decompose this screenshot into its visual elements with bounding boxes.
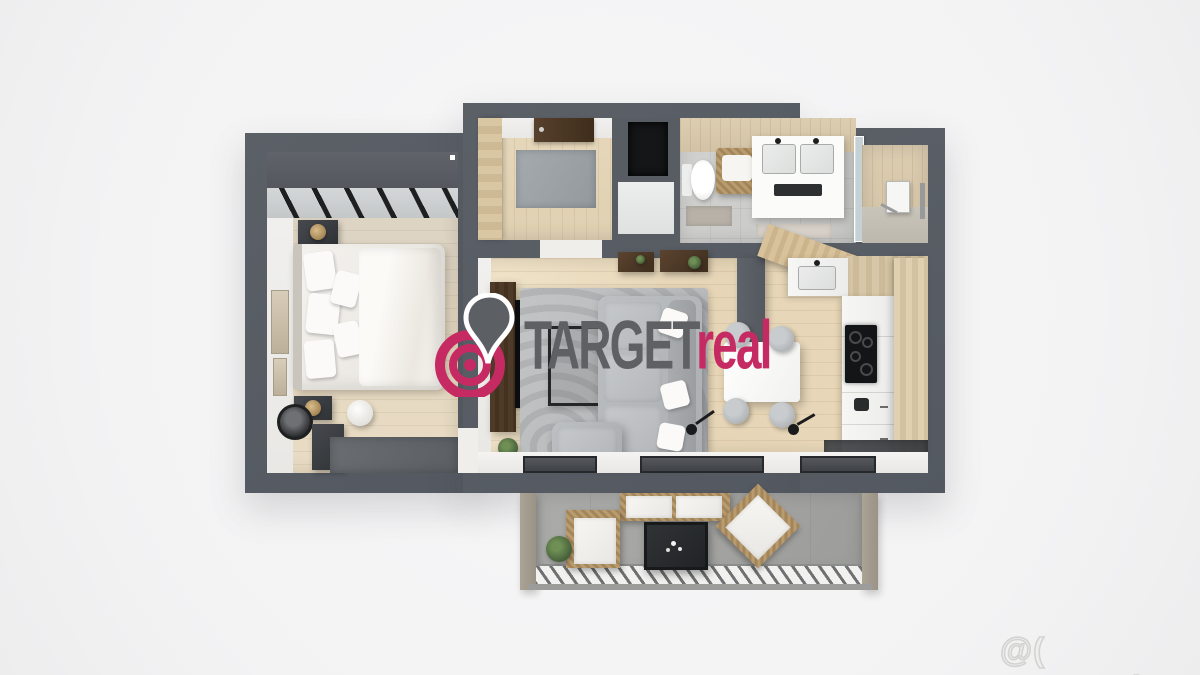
balcony-table xyxy=(644,522,708,570)
kitchen-sink xyxy=(798,266,836,290)
pouf xyxy=(347,400,373,426)
cooktop xyxy=(845,325,877,383)
logo-text-primary: TARGET xyxy=(524,306,696,383)
balcony-plant xyxy=(546,536,572,562)
floorplan-screenshot: TARGETreal @( Bazos.sk xyxy=(0,0,1200,675)
cabinet-handle xyxy=(880,406,888,408)
round-mirror xyxy=(277,404,313,440)
towel-rail xyxy=(920,183,925,219)
faucet xyxy=(775,138,781,144)
bath-mat xyxy=(686,206,732,226)
hall-doorway xyxy=(540,240,602,258)
sink-right xyxy=(800,144,834,174)
targetreal-logo: TARGETreal xyxy=(428,293,788,397)
sofa-pillow xyxy=(656,422,686,452)
sink-left xyxy=(762,144,796,174)
logo-text-accent: real xyxy=(696,306,770,383)
headboard xyxy=(293,244,302,390)
shelf-plant-small xyxy=(636,255,645,264)
shelf-plant xyxy=(688,256,701,269)
entry-door xyxy=(534,118,594,142)
utility-shaft-wall xyxy=(612,118,680,240)
pillow xyxy=(303,339,336,379)
hall-rug xyxy=(516,150,596,208)
entry-hall xyxy=(478,118,630,240)
rattan-sofa-cushion xyxy=(676,496,722,518)
bazos-watermark: @( Bazos.sk xyxy=(1000,631,1200,671)
laundry-cloth xyxy=(722,155,752,181)
wall-art-small xyxy=(273,358,287,396)
window xyxy=(523,456,597,473)
rattan-sofa-cushion xyxy=(626,496,672,518)
walk-in-shower xyxy=(862,145,928,243)
toilet-bowl xyxy=(691,160,715,200)
balcony-wall-right xyxy=(862,493,878,590)
built-in-wardrobe xyxy=(267,152,458,188)
shaft-cabinet xyxy=(618,182,674,234)
balcony-wall-left xyxy=(520,493,536,590)
door-handle xyxy=(539,127,544,132)
sink-counter xyxy=(788,258,848,296)
map-pin-target-icon xyxy=(428,293,532,397)
burner xyxy=(862,337,873,348)
dining-chair xyxy=(723,398,749,424)
kitchen-faucet xyxy=(814,260,820,266)
kitchen-tall-wood-panel xyxy=(894,258,928,458)
burner xyxy=(860,363,873,376)
balcony-door xyxy=(800,456,876,473)
burner xyxy=(850,351,861,362)
vanity-tray xyxy=(774,184,822,196)
burner xyxy=(849,331,862,344)
utility-shaft xyxy=(628,122,668,176)
floor-lamp-living xyxy=(686,424,697,435)
double-bed xyxy=(293,244,445,390)
railing-base xyxy=(528,584,872,590)
logo-text: TARGETreal xyxy=(524,311,771,380)
bedroom-doorway xyxy=(458,428,478,473)
window xyxy=(640,456,764,473)
rattan-armchair-left xyxy=(566,510,620,568)
double-vanity xyxy=(752,136,844,218)
table-flowers xyxy=(678,547,682,551)
glass-partition xyxy=(267,188,458,218)
table-flowers xyxy=(671,541,676,546)
faucet xyxy=(813,138,819,144)
cabinet-seam xyxy=(842,392,894,393)
rattan-sofa xyxy=(620,493,730,521)
toilet xyxy=(682,160,716,202)
wardrobe-handle xyxy=(450,155,455,160)
bedside-lamp-top xyxy=(310,224,326,240)
bedroom-rug xyxy=(330,437,458,473)
wall-art xyxy=(271,290,289,354)
kettle xyxy=(854,398,869,411)
armchair-cushion xyxy=(574,518,616,564)
cabinet-seam xyxy=(842,424,894,425)
hall-wardrobe xyxy=(478,118,502,240)
table-flowers xyxy=(666,548,670,552)
